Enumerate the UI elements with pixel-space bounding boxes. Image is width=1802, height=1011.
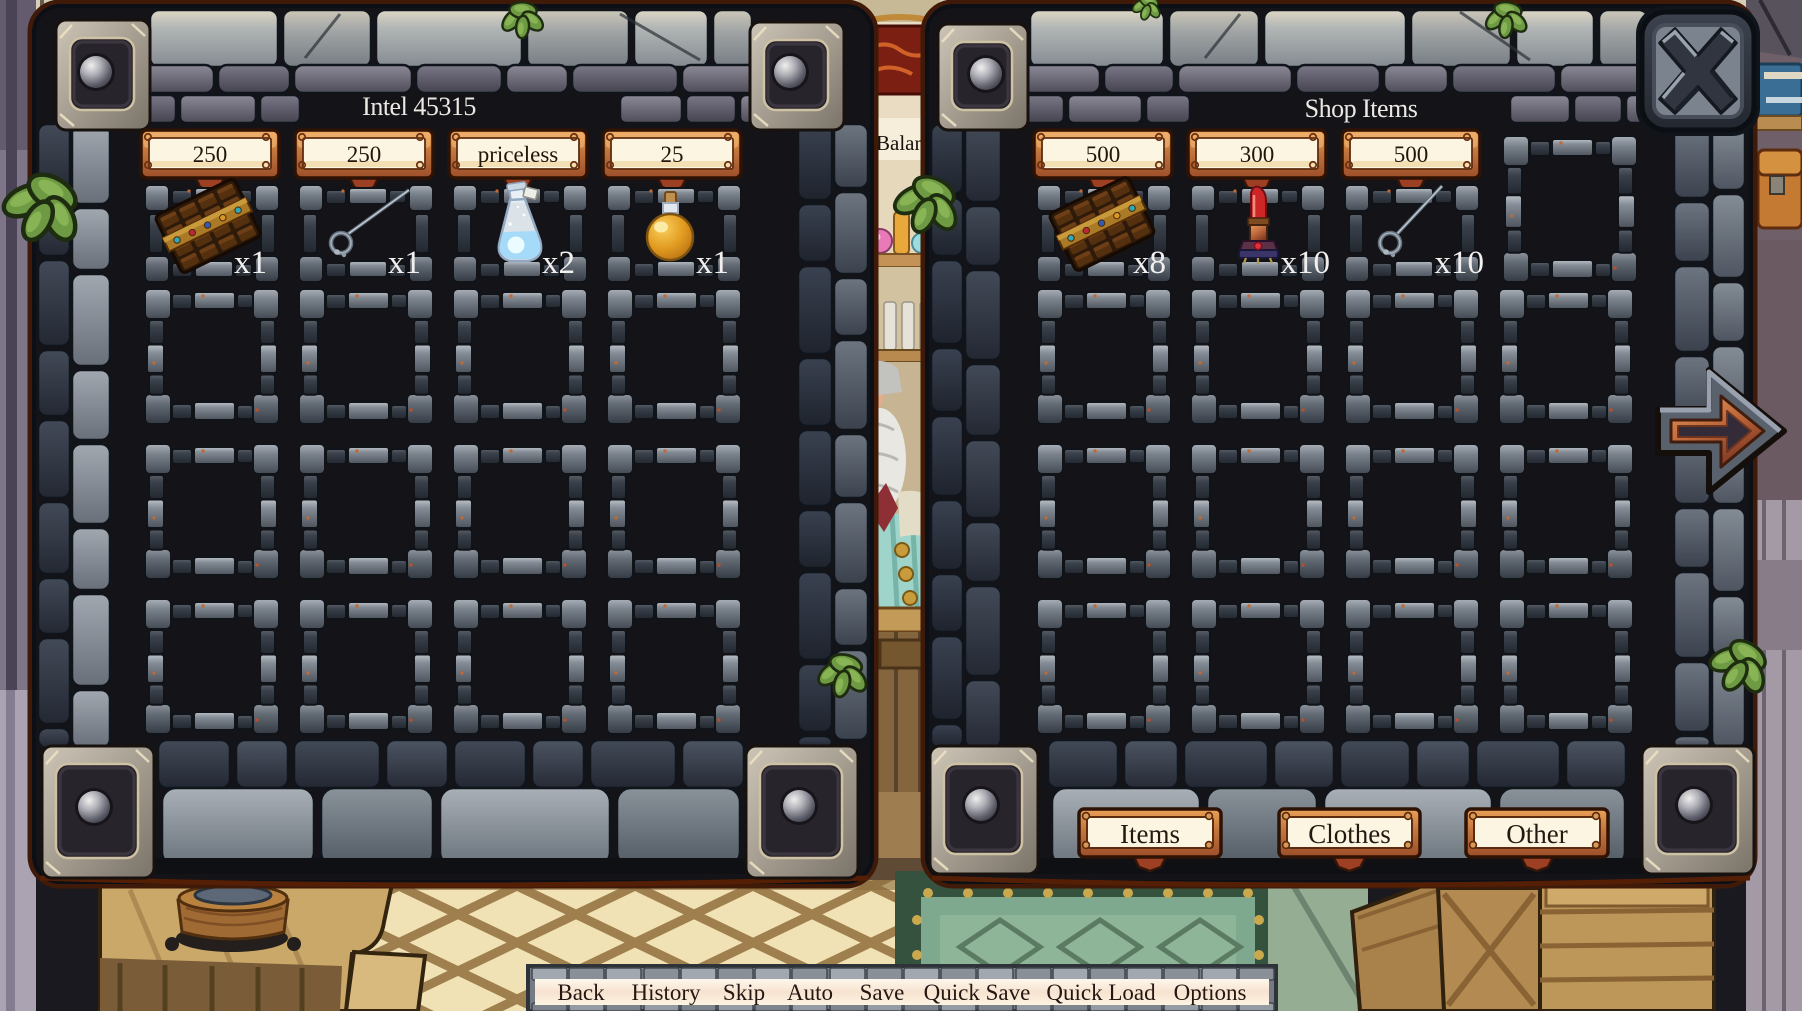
svg-text:Quick Save: Quick Save <box>924 980 1031 1005</box>
svg-text:Save: Save <box>860 980 905 1005</box>
svg-text:Skip: Skip <box>723 980 765 1005</box>
svg-text:25: 25 <box>661 142 684 167</box>
svg-text:500: 500 <box>1086 142 1121 167</box>
svg-text:500: 500 <box>1394 142 1429 167</box>
svg-text:Other: Other <box>1506 819 1567 849</box>
svg-text:x1: x1 <box>696 245 729 281</box>
svg-text:History: History <box>632 980 702 1005</box>
svg-text:Back: Back <box>557 980 605 1005</box>
svg-text:Quick Load: Quick Load <box>1046 980 1156 1005</box>
svg-text:x10: x10 <box>1281 245 1331 281</box>
svg-text:250: 250 <box>347 142 382 167</box>
svg-text:Options: Options <box>1174 980 1247 1005</box>
svg-text:Auto: Auto <box>787 980 833 1005</box>
svg-text:Items: Items <box>1120 819 1180 849</box>
svg-text:x1: x1 <box>234 245 267 281</box>
svg-text:300: 300 <box>1240 142 1275 167</box>
svg-text:x10: x10 <box>1435 245 1485 281</box>
svg-text:x1: x1 <box>388 245 421 281</box>
svg-text:Shop Items: Shop Items <box>1305 94 1418 123</box>
svg-text:250: 250 <box>193 142 228 167</box>
svg-text:Clothes: Clothes <box>1308 819 1391 849</box>
svg-text:Intel 45315: Intel 45315 <box>362 92 476 121</box>
svg-text:x8: x8 <box>1133 245 1166 281</box>
svg-text:priceless: priceless <box>478 142 559 167</box>
svg-text:x2: x2 <box>542 245 575 281</box>
